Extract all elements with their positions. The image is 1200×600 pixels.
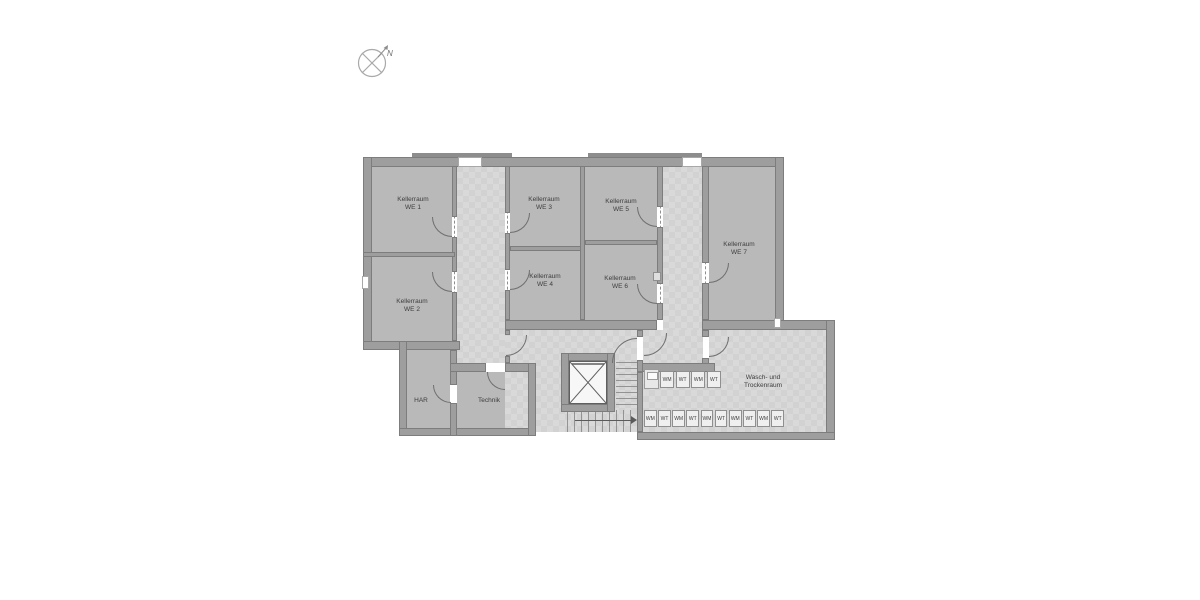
wall <box>510 246 583 251</box>
wall <box>399 428 536 436</box>
elevator-car <box>569 361 607 404</box>
wall <box>505 320 657 330</box>
appliance-wm: WM <box>757 410 770 427</box>
floor-corridor-west <box>457 166 505 363</box>
appliance-wm: WM <box>644 410 657 427</box>
room-name: Technik <box>459 397 519 405</box>
wall <box>452 292 457 341</box>
appliance-wm: WM <box>691 371 705 388</box>
appliance-wt: WT <box>676 371 690 388</box>
appliance-wt: WT <box>743 410 756 427</box>
appliance-wt: WT <box>658 410 671 427</box>
room-label-we3: Kellerraum WE 3 <box>504 196 584 213</box>
appliance-wt: WT <box>707 371 721 388</box>
room-unit: WE 5 <box>581 206 661 214</box>
room-label-technik: Technik <box>459 397 519 405</box>
window <box>774 318 781 328</box>
wall <box>528 363 536 436</box>
room-unit: WE 1 <box>373 204 453 212</box>
wall <box>399 341 407 436</box>
wall <box>637 360 643 372</box>
appliance-row-bottom: WM WT WM WT WM WT WM WT WM WT <box>644 410 784 427</box>
wall <box>826 320 835 440</box>
sink <box>644 369 659 389</box>
room-label-we1: Kellerraum WE 1 <box>373 196 453 213</box>
window <box>458 157 482 167</box>
room-name: Trockenraum <box>723 382 803 390</box>
wall <box>702 330 709 337</box>
compass-n-label: N <box>387 49 393 58</box>
wall <box>657 303 663 320</box>
room-name: Kellerraum <box>373 196 453 204</box>
room-label-we2: Kellerraum WE 2 <box>372 298 452 315</box>
floor-plan-canvas: N <box>0 0 1200 600</box>
room-label-we5: Kellerraum WE 5 <box>581 198 661 215</box>
room-unit: WE 4 <box>505 281 585 289</box>
window <box>362 276 369 289</box>
room-unit: WE 3 <box>504 204 584 212</box>
appliance-wt: WT <box>771 410 784 427</box>
wall <box>363 252 455 257</box>
wall <box>450 363 486 372</box>
room-label-we6: Kellerraum WE 6 <box>580 275 660 292</box>
room-name: Kellerraum <box>580 275 660 283</box>
stair-treads-upper <box>616 362 637 406</box>
room-name: HAR <box>391 397 451 405</box>
wall <box>637 372 643 432</box>
room-name: Wasch- und <box>723 374 803 382</box>
wall <box>363 157 784 167</box>
floor-corridor-east <box>663 166 702 333</box>
appliance-wm: WM <box>729 410 742 427</box>
wall <box>505 290 510 320</box>
elevator-x-icon <box>570 362 606 403</box>
room-name: Kellerraum <box>504 196 584 204</box>
room-name: Kellerraum <box>505 273 585 281</box>
wall <box>505 356 510 363</box>
appliance-wm: WM <box>701 410 714 427</box>
room-unit: WE 7 <box>699 249 779 257</box>
appliance-row-top: WM WT WM WT <box>660 371 721 388</box>
wall <box>637 432 835 440</box>
room-label-we4: Kellerraum WE 4 <box>505 273 585 290</box>
room-label-we7: Kellerraum WE 7 <box>699 241 779 258</box>
room-label-har: HAR <box>391 397 451 405</box>
appliance-wt: WT <box>686 410 699 427</box>
wall <box>505 233 510 270</box>
room-unit: WE 6 <box>580 283 660 291</box>
sink-basin <box>647 372 658 380</box>
room-name: Kellerraum <box>581 198 661 206</box>
stair-treads-lower <box>567 410 637 432</box>
wall <box>702 283 709 320</box>
room-name: Kellerraum <box>372 298 452 306</box>
appliance-wm: WM <box>660 371 674 388</box>
wall <box>702 320 835 330</box>
wall <box>585 240 657 245</box>
room-label-laundry: Wasch- und Trockenraum <box>723 374 803 391</box>
compass-north-icon: N <box>349 38 401 90</box>
room-unit: WE 2 <box>372 306 452 314</box>
wall <box>450 403 457 436</box>
appliance-wm: WM <box>672 410 685 427</box>
wall <box>637 330 643 337</box>
stair-direction-line <box>575 420 633 421</box>
appliance-wt: WT <box>715 410 728 427</box>
wall <box>363 341 460 350</box>
window <box>682 157 702 167</box>
room-name: Kellerraum <box>699 241 779 249</box>
